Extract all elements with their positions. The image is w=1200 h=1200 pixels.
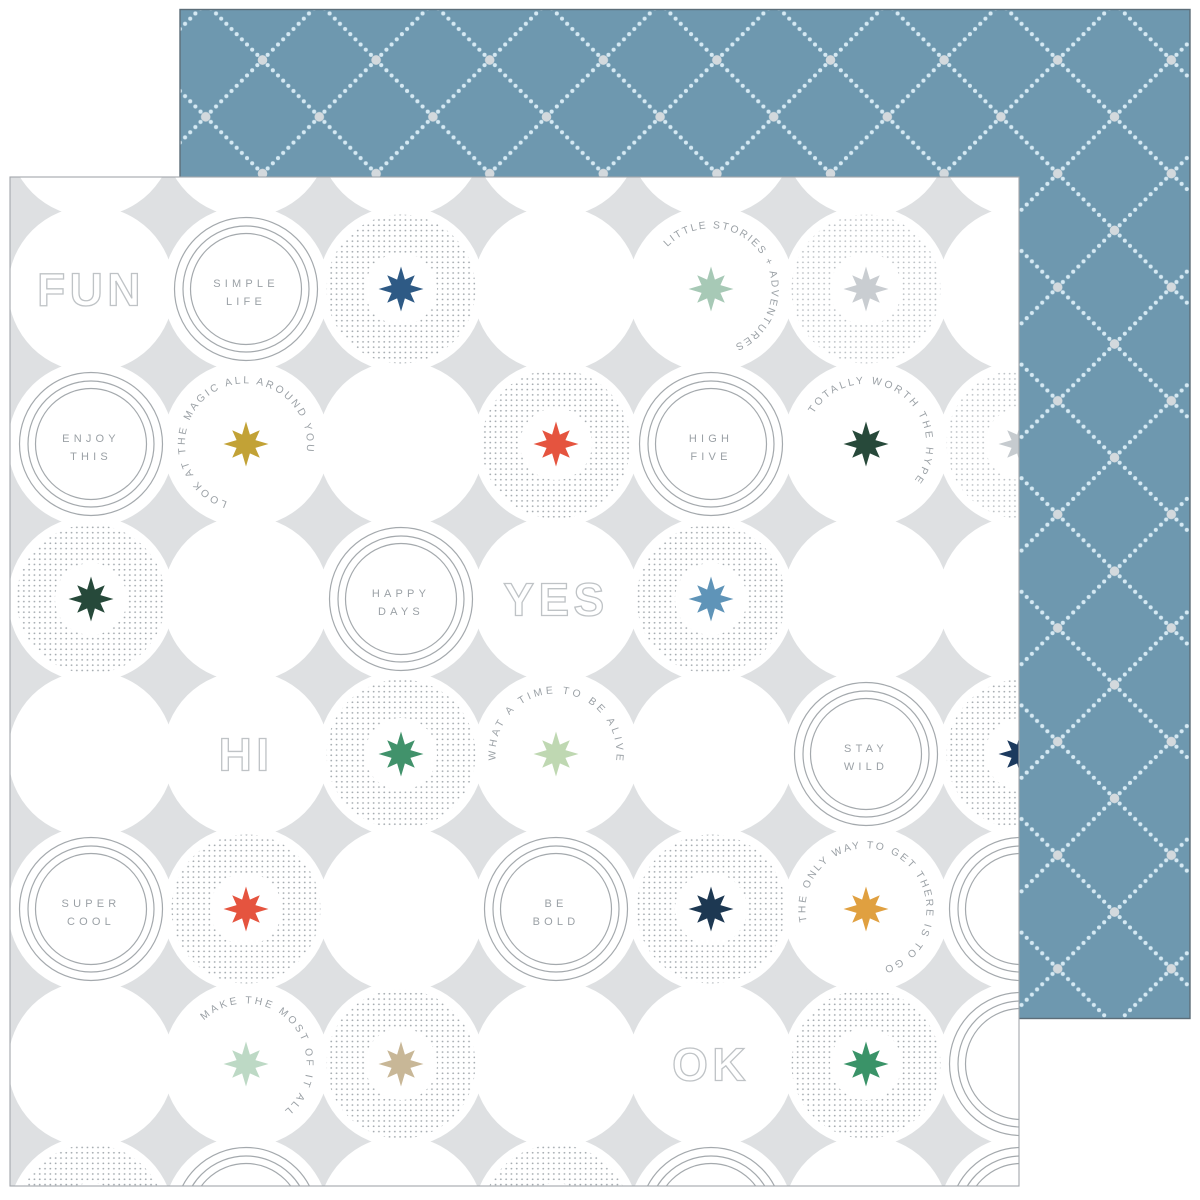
- svg-text:FUN: FUN: [37, 264, 145, 316]
- svg-text:BE: BE: [544, 898, 567, 910]
- svg-text:HIGH: HIGH: [689, 433, 733, 445]
- svg-text:OK: OK: [672, 1039, 750, 1091]
- svg-text:SIMPLE: SIMPLE: [213, 278, 279, 290]
- svg-text:THIS: THIS: [70, 451, 112, 463]
- svg-text:HAPPY: HAPPY: [372, 588, 430, 600]
- svg-text:LIFE: LIFE: [226, 296, 266, 308]
- svg-text:WILD: WILD: [844, 761, 888, 773]
- svg-text:YES: YES: [503, 574, 608, 626]
- svg-text:STAY: STAY: [844, 743, 888, 755]
- svg-text:FIVE: FIVE: [690, 451, 731, 463]
- svg-text:ENJOY: ENJOY: [62, 433, 120, 445]
- svg-text:HI: HI: [219, 729, 274, 781]
- svg-text:BOLD: BOLD: [533, 916, 580, 928]
- svg-text:DAYS: DAYS: [378, 606, 424, 618]
- svg-text:COOL: COOL: [67, 916, 115, 928]
- svg-text:SUPER: SUPER: [62, 898, 121, 910]
